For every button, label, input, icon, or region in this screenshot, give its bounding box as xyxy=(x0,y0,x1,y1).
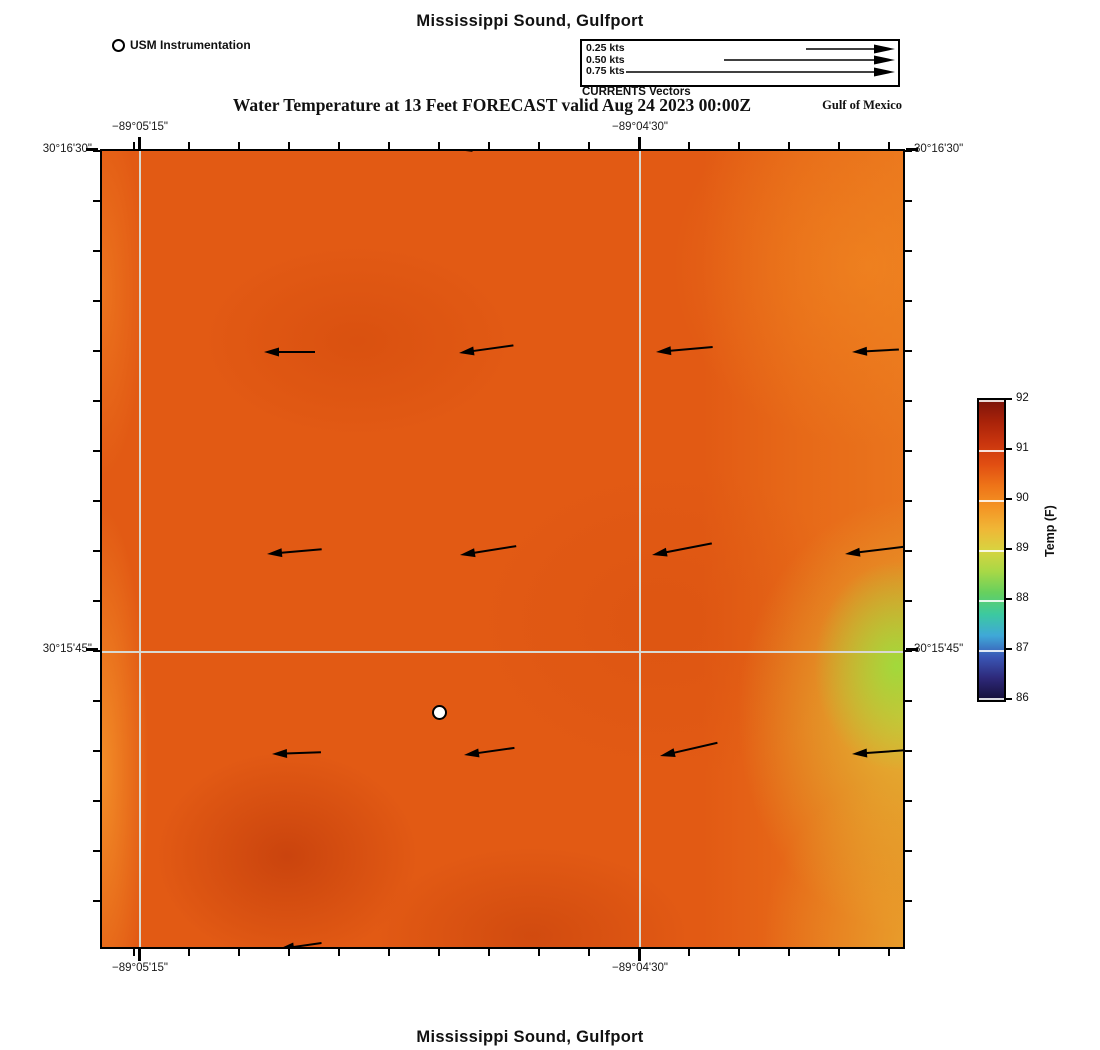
x-tick-bottom-2: −89°04'30" xyxy=(590,962,690,974)
current-vector-arrow xyxy=(658,735,719,764)
x-tick-top-1: −89°05'15" xyxy=(90,121,190,133)
top-axis-ticks xyxy=(100,142,905,149)
colorbar-tick-label: 89 xyxy=(1016,542,1029,554)
station-circle-icon xyxy=(112,39,125,52)
current-vector-arrow xyxy=(266,541,322,562)
current-vector-arrow xyxy=(463,740,516,763)
major-tick xyxy=(638,949,641,961)
colorbar-tick-label: 86 xyxy=(1016,692,1029,704)
usm-station-marker xyxy=(432,705,447,720)
footer-title: Mississippi Sound, Gulfport xyxy=(0,1028,1060,1047)
parallel-gridline xyxy=(102,651,903,653)
forecast-plot-page: Mississippi Sound, Gulfport USM Instrume… xyxy=(0,0,1100,1050)
left-axis-ticks xyxy=(93,149,100,949)
y-tick-right-1: 30°16'30" xyxy=(914,143,984,155)
colorbar-tick-label: 91 xyxy=(1016,442,1029,454)
currents-vector-legend: 0.25 kts0.50 kts0.75 kts xyxy=(580,39,900,87)
current-vector-arrow xyxy=(459,538,518,563)
current-vector-arrow xyxy=(650,536,713,563)
legend-arrow-icon xyxy=(584,43,896,55)
current-vector-arrow xyxy=(264,344,315,360)
colorbar-tick-label: 87 xyxy=(1016,642,1029,654)
x-tick-bottom-1: −89°05'15" xyxy=(90,962,190,974)
current-vector-arrow xyxy=(851,742,905,762)
temperature-heatmap xyxy=(100,149,905,949)
colorbar-ticks xyxy=(1004,398,1012,700)
region-label: Gulf of Mexico xyxy=(790,98,902,113)
x-tick-top-2: −89°04'30" xyxy=(590,121,690,133)
legend-arrow-icon xyxy=(584,66,896,78)
y-tick-left-1: 30°16'30" xyxy=(28,143,92,155)
legend-arrow-icon xyxy=(584,54,896,66)
right-axis-ticks xyxy=(905,149,912,949)
colorbar-title: Temp (F) xyxy=(1043,517,1057,557)
usm-legend: USM Instrumentation xyxy=(112,38,251,52)
colorbar-tick-label: 92 xyxy=(1016,392,1029,404)
current-vector-arrow xyxy=(456,149,501,158)
usm-legend-label: USM Instrumentation xyxy=(130,38,251,52)
y-tick-left-2: 30°15'45" xyxy=(28,643,92,655)
major-tick xyxy=(138,137,141,149)
current-vector-arrow xyxy=(844,538,905,562)
major-tick xyxy=(906,148,918,151)
bottom-axis-ticks xyxy=(100,949,905,956)
colorbar-tick-lines xyxy=(979,400,1004,700)
major-tick xyxy=(906,648,918,651)
colorbar xyxy=(977,398,1006,702)
current-vector-arrow xyxy=(458,337,515,360)
current-vector-arrow xyxy=(278,935,323,949)
colorbar-tick-label: 88 xyxy=(1016,592,1029,604)
major-tick xyxy=(638,137,641,149)
major-tick xyxy=(138,949,141,961)
major-tick xyxy=(86,148,98,151)
current-vector-arrow xyxy=(655,339,713,360)
meridian-gridline xyxy=(139,151,141,947)
major-tick xyxy=(86,648,98,651)
page-title: Mississippi Sound, Gulfport xyxy=(0,12,1060,31)
current-vector-arrow xyxy=(272,744,322,762)
colorbar-tick-label: 90 xyxy=(1016,492,1029,504)
current-vector-arrow xyxy=(852,342,900,360)
y-tick-right-2: 30°15'45" xyxy=(914,643,984,655)
meridian-gridline xyxy=(639,151,641,947)
